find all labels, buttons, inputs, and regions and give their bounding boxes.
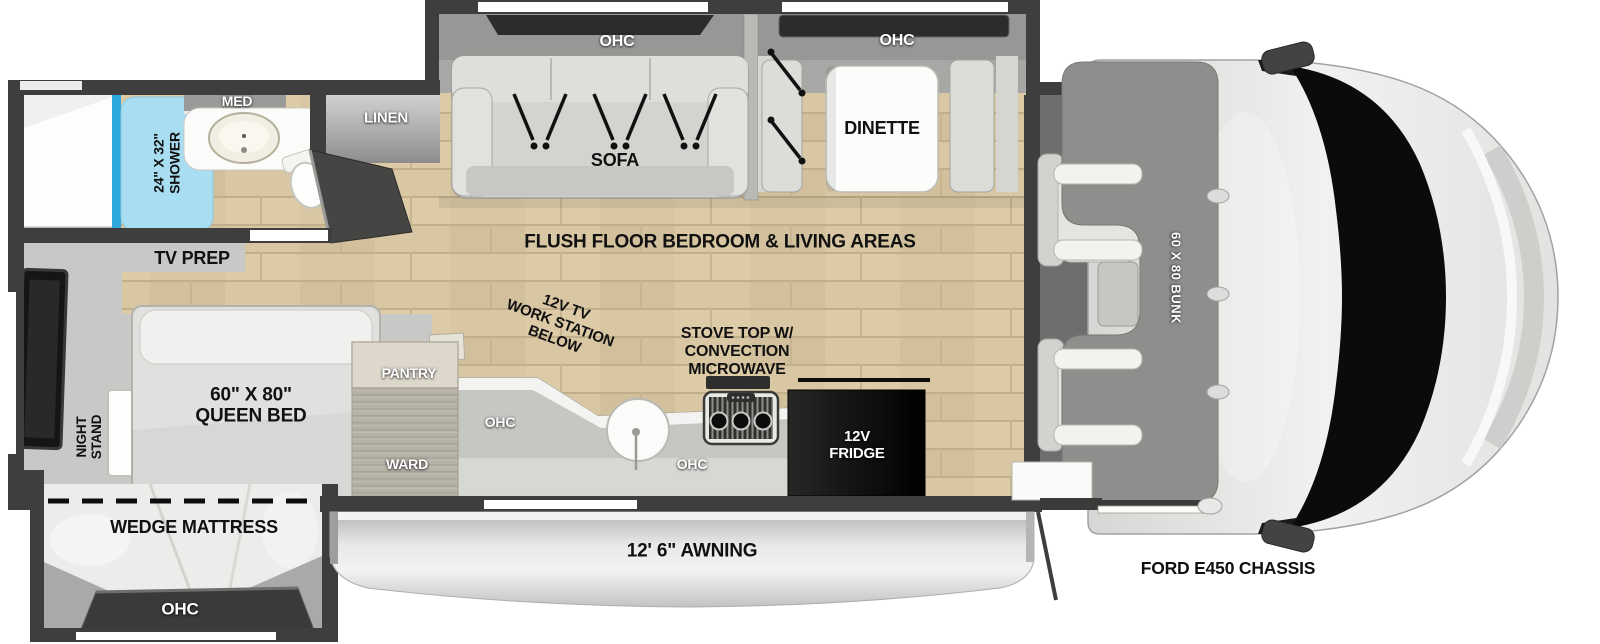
pantry-wardrobe-icon (352, 333, 465, 496)
cab (1012, 40, 1558, 554)
stove-icon (704, 392, 778, 444)
bathroom-wall (310, 93, 326, 155)
microwave-pointer-line (798, 378, 930, 382)
fridge-icon (788, 390, 925, 496)
queen-bed-icon (132, 306, 380, 506)
cab-console (1098, 262, 1138, 326)
awning-arm (1038, 512, 1056, 600)
shower-icon (18, 95, 213, 231)
sofa-icon (452, 56, 748, 198)
tv-icon (17, 269, 67, 448)
linen-closet-icon (326, 93, 440, 163)
entry-landing (1012, 462, 1092, 500)
floorplan-artwork (0, 0, 1600, 644)
dinette-window-icon (779, 15, 1009, 37)
range-hood-icon (706, 376, 770, 389)
wedge-ohc-icon (80, 588, 314, 632)
wedge-slideout (8, 470, 338, 642)
dinette-icon (758, 49, 1018, 193)
rv-floorplan: OHC OHC SOFA DINETTE MED 24" X 32" SHOWE… (0, 0, 1600, 644)
awning-icon (330, 512, 1056, 607)
bathroom-doorway (250, 230, 328, 241)
entry-step (1096, 500, 1206, 506)
sofa-window-icon (486, 15, 714, 35)
